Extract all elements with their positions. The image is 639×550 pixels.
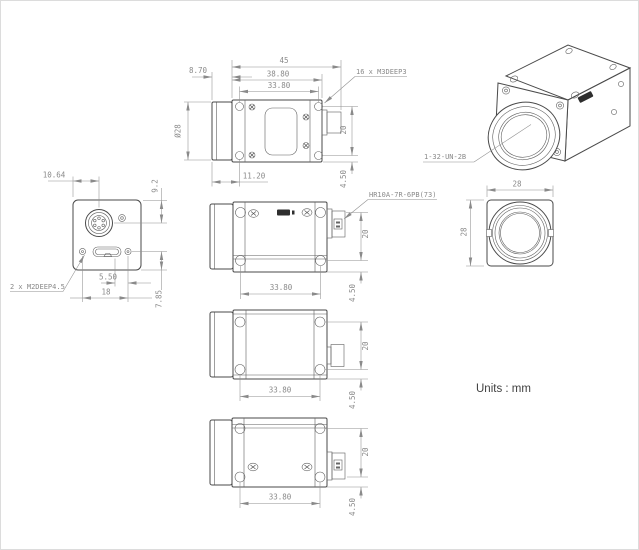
note-connector: HR10A-7R-6PB(73) (369, 191, 436, 199)
dim-lens-diameter: Ø28 (174, 124, 183, 138)
dim-mount-hole-span: 33.80 (269, 493, 292, 502)
camera-body-side (233, 310, 327, 379)
dim-mount-hole-span: 33.80 (270, 283, 293, 292)
dim-hole-to-edge: 4.50 (348, 390, 357, 409)
brand-logo (277, 210, 290, 216)
side-view-bottom: 33.80 20 4.50 (210, 310, 370, 409)
dim-hole-to-edge: 4.50 (348, 283, 357, 302)
camera-front-face (487, 200, 553, 266)
camera-body-side (232, 418, 327, 487)
dim-hole-to-edge: 4.50 (339, 169, 348, 188)
hirose-connector-side (327, 345, 344, 367)
dim-connector-offset-y: 9.2 (151, 179, 160, 193)
engineering-drawing: 10.64 9.2 7.85 5.50 18 2 x M2DEEP4.5 (0, 0, 639, 550)
lens-barrel (212, 102, 232, 160)
dim-hole-span-vertical: 20 (361, 341, 370, 351)
back-view: 10.64 9.2 7.85 5.50 18 2 x M2DEEP4.5 (10, 171, 167, 309)
note-mount-holes: 16 x M3DEEP3 (356, 68, 407, 76)
dim-width: 28 (512, 180, 522, 189)
top-view: 45 38.80 33.80 8.70 Ø28 11.20 20 4.50 16… (174, 56, 408, 188)
dim-hole-span-vertical: 20 (361, 229, 370, 239)
dim-height: 28 (460, 227, 469, 237)
camera-back-panel (73, 200, 141, 270)
front-view: 28 28 (460, 180, 554, 267)
note-screw-holes: 2 x M2DEEP4.5 (10, 283, 65, 291)
dim-lens-protrusion: 8.70 (189, 66, 208, 75)
dim-lens-to-hole: 11.20 (243, 172, 266, 181)
brand-logo-mark (292, 211, 295, 215)
dim-hole-to-edge: 4.50 (348, 497, 357, 516)
side-view-right: 33.80 20 4.50 HR10A-7R-6PB(73) (210, 191, 437, 302)
dim-mount-hole-span: 33.80 (269, 386, 292, 395)
dim-mount-hole-span: 33.80 (268, 81, 291, 90)
drawing-canvas: 10.64 9.2 7.85 5.50 18 2 x M2DEEP4.5 (0, 0, 639, 550)
dim-screw-span: 18 (101, 288, 111, 297)
perspective-view: 1-32-UN-2B (423, 45, 630, 180)
dim-total-length: 45 (279, 56, 288, 65)
camera-body-top (232, 100, 322, 162)
dim-usb-to-bottom: 7.85 (155, 290, 164, 308)
dim-hole-span-vertical: 20 (361, 447, 370, 457)
lens-barrel (210, 312, 233, 377)
dim-body-length: 38.80 (267, 70, 290, 79)
side-view-left: 33.80 20 4.50 (210, 418, 370, 516)
units-note: Units : mm (476, 383, 531, 395)
set-screw-notch (487, 230, 492, 237)
note-lens-thread: 1-32-UN-2B (424, 153, 466, 161)
dim-hole-span-vertical: 20 (339, 125, 348, 135)
lens-barrel (210, 420, 232, 485)
hirose-connector-side (327, 452, 345, 480)
set-screw-notch (549, 230, 554, 237)
dim-usb-to-screw: 5.50 (99, 273, 118, 282)
note-leader (344, 200, 368, 220)
dim-connector-offset-x: 10.64 (43, 171, 66, 180)
lens-barrel (210, 204, 233, 269)
note-leader (325, 77, 356, 104)
hirose-connector-side (327, 209, 345, 238)
